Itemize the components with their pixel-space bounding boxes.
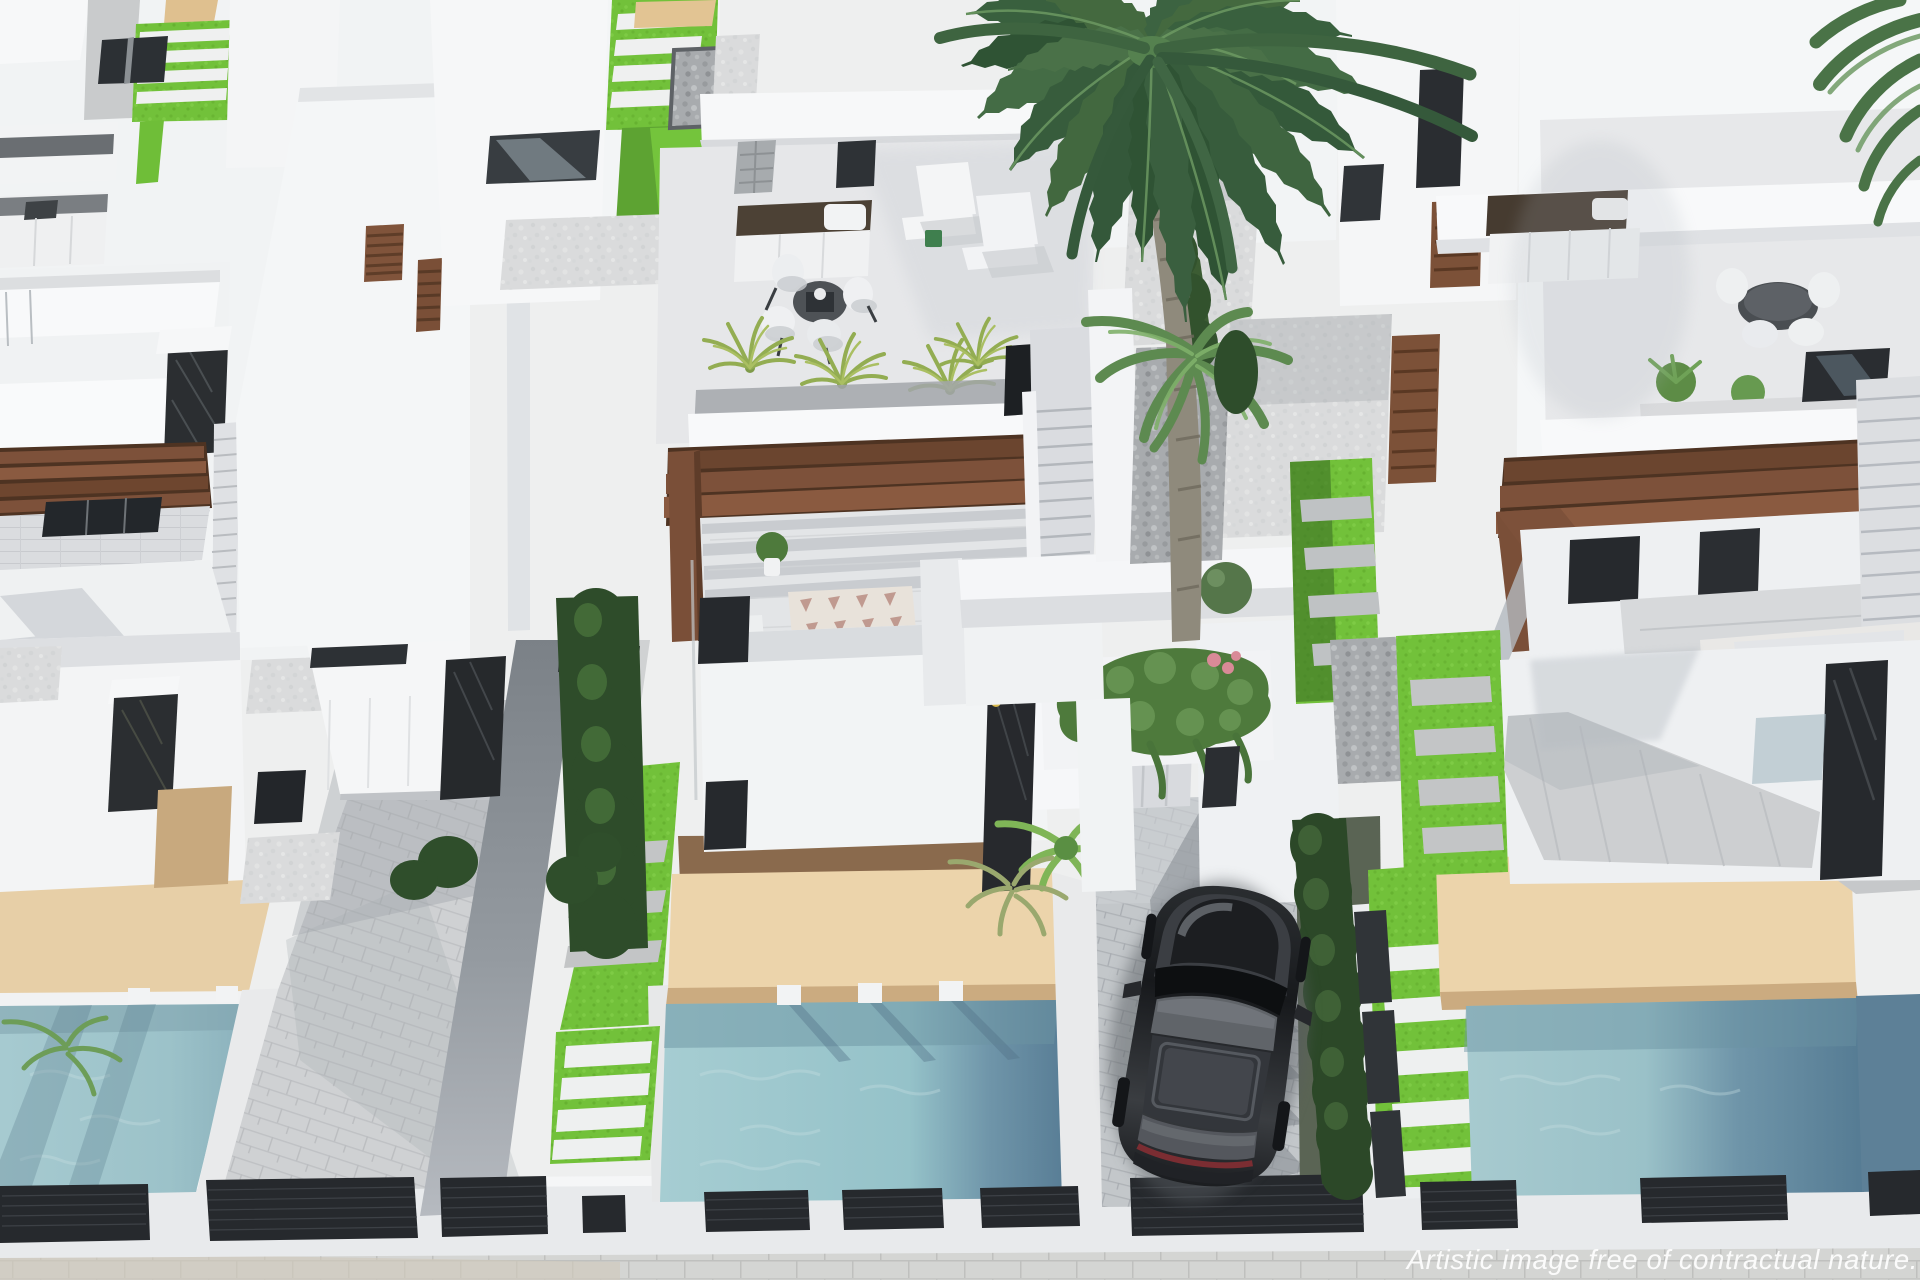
svg-text:Artistic image free of contrac: Artistic image free of contractual natur… xyxy=(1405,1244,1918,1275)
